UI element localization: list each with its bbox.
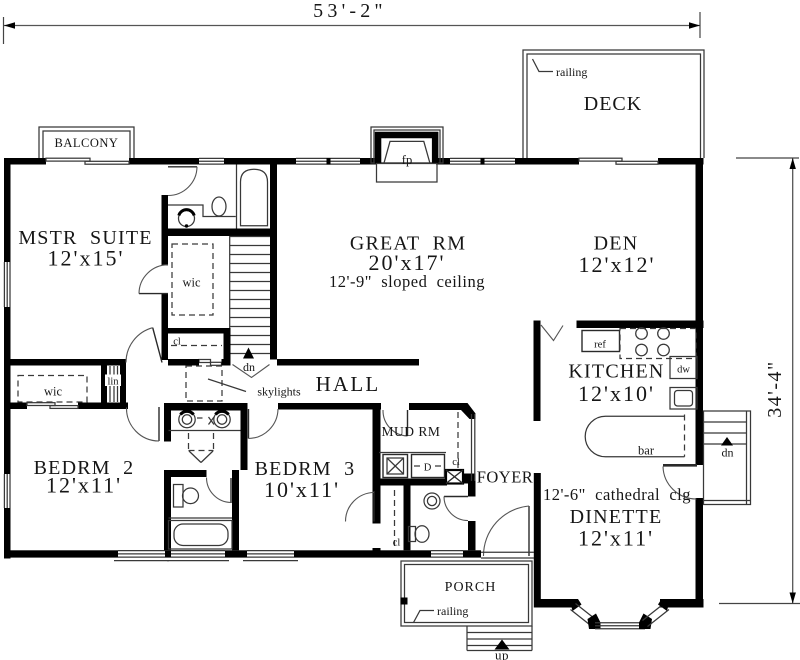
svg-text:FOYER: FOYER xyxy=(477,468,534,487)
svg-text:34'-4": 34'-4" xyxy=(764,360,786,417)
svg-text:KITCHEN: KITCHEN xyxy=(568,361,664,383)
svg-text:dw: dw xyxy=(677,365,690,376)
svg-text:up: up xyxy=(495,648,509,660)
svg-text:railing: railing xyxy=(437,604,468,618)
svg-text:wic: wic xyxy=(44,385,63,399)
svg-text:12'x12': 12'x12' xyxy=(579,252,656,277)
svg-text:12'x15': 12'x15' xyxy=(48,246,125,271)
svg-text:12'-6" cathedral clg: 12'-6" cathedral clg xyxy=(543,485,691,504)
svg-text:railing: railing xyxy=(556,65,587,79)
svg-text:12'x11': 12'x11' xyxy=(578,526,654,551)
svg-text:DECK: DECK xyxy=(584,93,642,115)
svg-text:PORCH: PORCH xyxy=(445,580,497,595)
svg-text:lin: lin xyxy=(107,377,119,388)
svg-text:skylights: skylights xyxy=(257,385,301,399)
svg-text:dn: dn xyxy=(243,360,255,374)
svg-text:bar: bar xyxy=(638,444,655,458)
svg-text:53'-2": 53'-2" xyxy=(313,0,387,22)
svg-text:10'x11': 10'x11' xyxy=(264,477,340,502)
svg-text:cl: cl xyxy=(393,538,401,549)
svg-text:ref: ref xyxy=(594,340,606,351)
svg-text:cl: cl xyxy=(173,337,181,348)
svg-text:12'x11': 12'x11' xyxy=(46,473,122,498)
svg-text:dn: dn xyxy=(722,446,734,460)
svg-text:HALL: HALL xyxy=(316,372,381,396)
svg-text:fp: fp xyxy=(402,153,412,167)
svg-text:MUD RM: MUD RM xyxy=(382,424,441,439)
svg-text:wic: wic xyxy=(182,276,201,290)
svg-text:BALCONY: BALCONY xyxy=(55,136,119,150)
svg-text:12'-9" sloped ceiling: 12'-9" sloped ceiling xyxy=(329,272,485,291)
svg-text:D: D xyxy=(424,463,432,474)
svg-text:12'x10': 12'x10' xyxy=(578,381,655,406)
svg-text:cl: cl xyxy=(452,457,460,468)
